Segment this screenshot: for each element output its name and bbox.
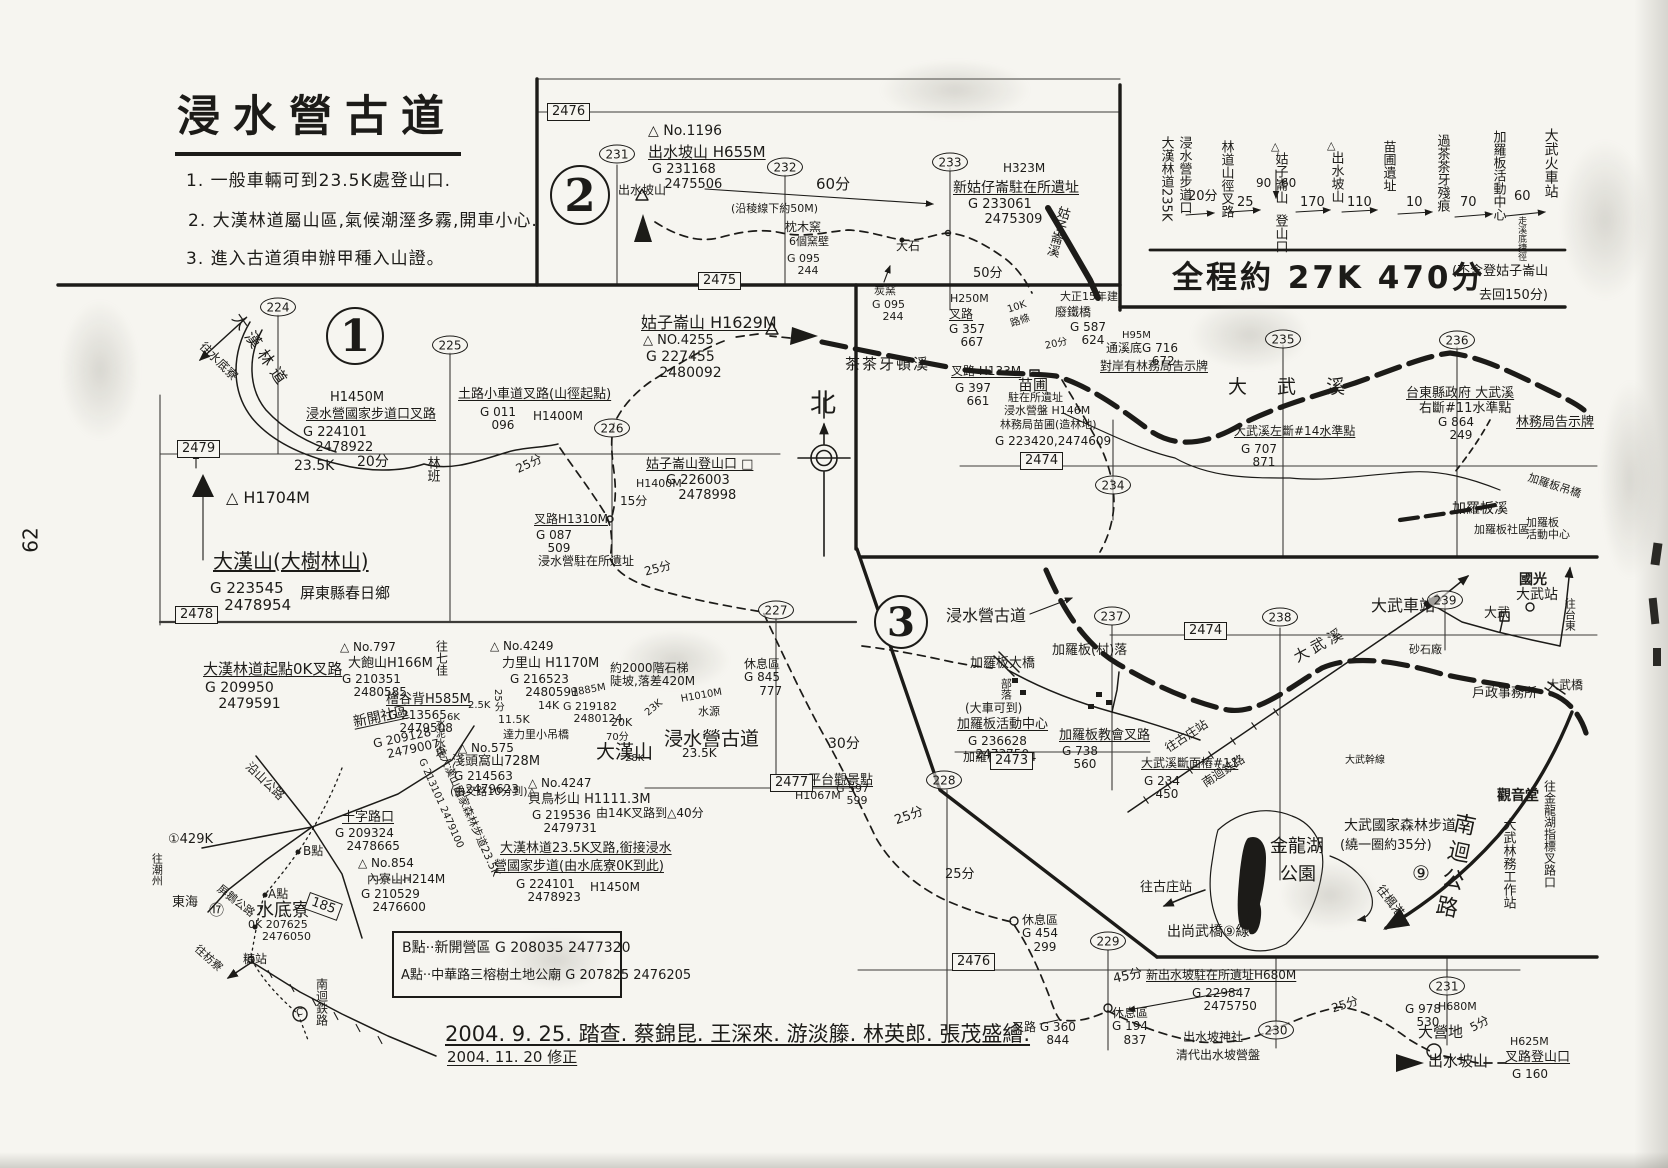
map-label: G 011 096 <box>480 406 516 433</box>
grid-coordinate-230: 230 <box>1258 1021 1294 1040</box>
map-label: G 160 <box>1512 1068 1548 1081</box>
grid-coordinate-227: 227 <box>758 601 794 620</box>
map-label: G 864 249 <box>1438 416 1474 443</box>
label-layer: 浸水營古道 1. 一般車輛可到23.5K處登山口. 2. 大漢林道屬山區,氣候潮… <box>0 0 1668 1168</box>
map-label: 砂石廠 <box>1409 644 1442 656</box>
map-label: 大漢林道235K <box>1158 136 1173 221</box>
map-label: 姑子崙溪 <box>1043 204 1071 258</box>
grid-label-2475: 2475 <box>698 272 741 290</box>
map-label: △ No.797 <box>340 641 396 654</box>
map-label: 60 <box>1281 177 1296 190</box>
map-label: 28K <box>625 753 644 764</box>
map-label: H680M <box>1438 1001 1477 1013</box>
map-label: 往金龍湖指標叉路口 <box>1542 780 1555 888</box>
map-label: 姑子崙山 H1629M <box>641 314 777 332</box>
map-label: G 219536 2479731 <box>532 809 597 836</box>
map-label: 林道山徑叉路 <box>1218 140 1233 218</box>
map-label: 營國家步道(由水底寮0K到此) <box>494 860 664 875</box>
map-label: G 095 244 <box>872 299 905 324</box>
grid-label-2479: 2479 <box>177 440 220 458</box>
map-label: 11.5K <box>498 714 530 726</box>
map-label: 大飽山H166M <box>348 657 433 672</box>
map-label: 大武幹線 <box>1345 755 1385 766</box>
map-label: 10 <box>1406 196 1423 211</box>
map-label: G 226003 2478998 <box>666 474 736 503</box>
map-label: 東海 <box>172 896 198 911</box>
map-label: ⑨ <box>1412 862 1430 884</box>
map-label: G 223420,2474609 <box>995 435 1111 448</box>
map-label: 對岸有林務局告示牌 <box>1100 360 1208 373</box>
map-label: B點··新開營區 G 208035 2477320 <box>402 941 631 957</box>
map-label: 大漢林道23.5K叉路,銜接浸水 <box>500 842 672 857</box>
map-label: 姑子崙山登山口 □ <box>646 458 753 473</box>
grid-coordinate-235: 235 <box>1265 330 1301 349</box>
map-label: 達力里小吊橋 <box>503 729 569 741</box>
map-label: 往七佳 <box>434 640 447 676</box>
map-label: 加羅板吊橋 <box>1526 472 1582 501</box>
map-label: 公園 <box>1280 865 1316 885</box>
map-label: H95M <box>1122 330 1151 341</box>
map-label: 糖站 <box>243 953 267 966</box>
map-label: 6K <box>447 712 460 723</box>
map-label: 戶政事務所 <box>1472 687 1537 702</box>
map-label: 路條 <box>1009 313 1031 330</box>
grid-coordinate-224: 224 <box>260 298 296 317</box>
map-label: 觀音堂 <box>1497 789 1539 805</box>
map-label: 加羅板(村)落 <box>1052 644 1127 659</box>
map-label: G 223545 2478954 <box>210 580 291 614</box>
map-label: H1400M <box>533 410 583 423</box>
map-label: G 229847 2475750 <box>1192 987 1257 1014</box>
map-label: 加羅板溪 <box>1452 502 1508 518</box>
map-label: △ No.4247 <box>528 777 592 790</box>
map-label: 叉路H1310M <box>534 513 608 526</box>
map-label: G 209324 2478665 <box>335 827 400 854</box>
map-label: 力里山 H1170M <box>502 657 599 672</box>
map-label: 大 武 溪 <box>1228 377 1357 398</box>
map-label: 加羅板活動中心 <box>957 718 1048 733</box>
map-label: G 587 624 <box>1070 321 1106 348</box>
map-label: 過茶茶牙殘痕 <box>1434 134 1449 212</box>
map-label: 新出水坡駐在所遺址H680M <box>1146 969 1296 982</box>
map-label: 加羅板活動中心 <box>1490 130 1505 221</box>
map-label: 大武橋 <box>1547 679 1583 692</box>
grid-coordinate-229: 229 <box>1090 932 1126 951</box>
map-label: 20分 <box>1188 190 1218 205</box>
grid-label-2476: 2476 <box>547 103 590 121</box>
map-label: 23.5K <box>682 747 717 760</box>
map-label: 叉路登山口 <box>1505 1051 1570 1066</box>
map-label: 走溪底捷徑 <box>1516 216 1526 261</box>
map-label: 大營地 <box>1418 1024 1463 1041</box>
map-label: H1450M <box>590 881 640 894</box>
map-label: G 224101 2478923 <box>516 878 581 905</box>
map-note-1: 1. 一般車輛可到23.5K處登山口. <box>186 166 451 191</box>
map-label: 加羅板社區 <box>1474 524 1529 536</box>
map-label: 由14K叉路到△40分 <box>596 807 704 820</box>
map-label: 出水坡山 <box>618 184 666 197</box>
map-label: 2.5K <box>468 700 490 711</box>
map-label: 5分 <box>1468 1014 1492 1035</box>
map-label: 水源 <box>698 706 720 718</box>
map-label: 枕木窯 <box>785 221 821 234</box>
map-label: 十字路口 <box>342 811 394 826</box>
map-label: (繞一圈約35分) <box>1340 839 1432 854</box>
map-label: 6個窯壁 <box>789 236 829 248</box>
map-note-3: 3. 進入古道須申辦甲種入山證。 <box>186 244 445 269</box>
map-label: 25分 <box>1330 995 1360 1016</box>
grid-coordinate-226: 226 <box>594 419 630 438</box>
map-label: 叉路 G 360 844 <box>1012 1021 1076 1048</box>
map-label: 土路小車道叉路(山徑起點) <box>458 388 611 403</box>
map-label: 叉路 H133M <box>951 365 1021 378</box>
map-label: 25分 <box>893 805 926 829</box>
map-label: 登山口 <box>1272 214 1287 253</box>
map-label: 45分 <box>1112 967 1144 987</box>
grid-coordinate-237: 237 <box>1094 607 1130 626</box>
map-label: G 597 599 <box>836 783 869 808</box>
map-label: 大武林務工作站 <box>1500 818 1515 909</box>
map-label: 北 <box>810 390 836 419</box>
map-label: 15分 <box>620 495 647 508</box>
map-label: 金龍湖 <box>1270 837 1324 857</box>
grid-label-2477: 2477 <box>770 774 813 792</box>
map-label: H250M <box>950 293 989 305</box>
grid-coordinate-231: 231 <box>599 145 635 164</box>
map-label: G 095 244 <box>787 253 820 278</box>
map-label: G 234 450 <box>1144 775 1180 802</box>
map-label: 往枋寮 <box>192 943 225 974</box>
map-label: G 707 871 <box>1241 443 1277 470</box>
map-label: 約2000階石梯 陡坡,落差420M <box>610 662 695 689</box>
grid-coordinate-239: 239 <box>1427 591 1463 610</box>
map-label: 休息區 G 845 777 <box>744 658 782 698</box>
map-label: 60 <box>1514 190 1531 205</box>
map-label: 沿山公路 <box>243 760 287 803</box>
map-label: G 210529 2476600 <box>361 888 426 915</box>
map-label: △ NO.4255 <box>643 334 714 349</box>
map-label: 內寮山H214M <box>367 873 445 886</box>
map-label: 茶茶牙頓溪 <box>845 356 930 373</box>
map-label: 炭窯 <box>874 285 896 297</box>
map-label: G 209128 2479007 <box>372 725 441 765</box>
map-label: 大武車站 <box>1371 597 1435 615</box>
map-label: 大武國家森林步道 <box>1344 819 1456 835</box>
map-label: 20分 <box>1044 336 1069 352</box>
grid-coordinate-234: 234 <box>1095 476 1131 495</box>
map-label: 大石 <box>896 240 920 253</box>
scan-edge-bottom <box>0 1152 1668 1168</box>
map-label: 駐在所遺址 <box>1008 392 1063 404</box>
page-number: 62 <box>19 527 43 552</box>
map-label: 大漢林道起點0K叉路 <box>203 661 342 678</box>
map-label: △ H1704M <box>226 489 310 507</box>
map-label: 加羅板 活動中心 <box>1526 517 1570 542</box>
map-label: ⑰ <box>209 902 224 919</box>
map-label: 90 <box>1256 177 1271 190</box>
map-label: H323M <box>1003 162 1045 175</box>
map-label: △ No.1196 <box>648 124 722 140</box>
map-label: H1450M <box>330 391 384 406</box>
map-label: 出水坡神社 <box>1183 1031 1243 1044</box>
map-label: G 397 661 <box>955 382 991 409</box>
grid-coordinate-233: 233 <box>932 153 968 172</box>
grid-label-2474: 2474 <box>1184 622 1227 640</box>
map-label: 25 <box>1237 196 1254 211</box>
grid-coordinate-228: 228 <box>926 771 962 790</box>
map-label: 23K <box>643 698 665 719</box>
map-label: 部落 <box>999 678 1011 700</box>
grid-label-2476: 2476 <box>952 953 995 971</box>
map-label: G 233061 2475309 <box>968 198 1042 227</box>
route-total-note-1: (不含登姑子崙山 <box>1452 260 1548 279</box>
credit-line-1: 2004. 9. 25. 踏查. 蔡錦昆. 王深來. 游淡籐. 林英郎. 張茂盛… <box>445 1018 1030 1048</box>
map-label: ①429K <box>168 833 213 848</box>
map-label: 大武站 <box>1516 588 1558 604</box>
credit-line-2: 2004. 11. 20 修正 <box>447 1046 577 1067</box>
map-label: 25分 <box>945 868 975 883</box>
map-label: 14K <box>538 700 559 712</box>
map-label: 新姑仔崙駐在所遺址 <box>953 181 1079 197</box>
map-label: H1010M <box>680 687 723 705</box>
map-label: 大武溪 <box>1291 624 1349 666</box>
map-label: 30分 <box>828 737 860 753</box>
map-label: 浸水營國家步道口叉路 <box>306 408 436 423</box>
map-label: 休息區 G 454 299 <box>1022 914 1058 954</box>
map-label: (沿稜線下約50M) <box>731 203 818 215</box>
map-note-2: 2. 大漢林道屬山區,氣候潮溼多霧,開車小心. <box>188 206 538 231</box>
map-label: 屏東縣春日鄉 <box>300 585 390 602</box>
map-title: 浸水營古道 <box>175 82 461 156</box>
map-label: 加羅板大橋 <box>970 657 1035 672</box>
route-total-note-2: 去回150分) <box>1479 284 1548 303</box>
map-label: 叉路 <box>949 308 973 321</box>
map-label: 出水坡山 <box>1328 151 1343 203</box>
map-label: 60分 <box>816 176 850 193</box>
map-label: 往古庄站 <box>1140 881 1192 896</box>
map-label: 大武溪左斷#14水準點 <box>1234 425 1355 438</box>
map-label: H625M <box>1510 1036 1549 1048</box>
map-label: 70 <box>1460 196 1477 211</box>
map-label: 南迴鉄路 <box>314 978 327 1026</box>
map-label: G 357 667 <box>949 323 985 350</box>
map-label: 20K <box>611 717 632 729</box>
map-label: 林務局苗圃(造林地) <box>1000 419 1097 431</box>
map-label: 出水坡山 H655M <box>648 144 766 161</box>
map-label: 50分 <box>973 267 1003 282</box>
map-label: 大武 <box>1484 607 1510 622</box>
section-marker-1: 1 <box>326 307 384 365</box>
map-label: 往潮州 <box>150 853 162 886</box>
map-label: 110 <box>1347 196 1372 211</box>
grid-label-2474: 2474 <box>1020 452 1063 470</box>
map-label: A點··中華路三榕樹土地公廟 G 207825 2476205 <box>401 969 691 984</box>
map-label: C <box>296 1007 303 1018</box>
map-label: G 224101 2478922 <box>303 426 373 455</box>
map-label: △ No.854 <box>358 857 414 870</box>
grid-label-2478: 2478 <box>175 606 218 624</box>
map-label: G 209950 2479591 <box>205 681 281 712</box>
map-label: 台東縣政府 大武溪 <box>1406 387 1514 402</box>
map-label: 25分 <box>514 452 544 476</box>
section-marker-3: 3 <box>874 595 928 649</box>
map-label: 往台東 <box>1563 598 1575 631</box>
map-label: 休息區 G 194 837 <box>1112 1007 1148 1047</box>
map-label: G 227455 2480092 <box>646 350 722 381</box>
map-label: 大漢林道 <box>228 310 293 392</box>
route-total: 全程約 27K 470分 <box>1172 252 1485 297</box>
map-label: 出尚武橋⑨線 <box>1167 925 1250 941</box>
map-label: 170 <box>1300 196 1325 211</box>
map-label: 出水坡山 <box>1428 1053 1488 1070</box>
map-label: 清代出水坡營盤 <box>1176 1049 1260 1062</box>
grid-coordinate-225: 225 <box>432 336 468 355</box>
map-label: 20分 <box>357 455 389 471</box>
map-label: G 216523 2480591 <box>510 673 579 700</box>
map-label: 林班 <box>424 456 439 482</box>
map-label: 23.5K <box>294 459 334 475</box>
map-label: 浸水營駐在所遺址 <box>538 555 634 568</box>
map-canvas: 浸水營古道 1. 一般車輛可到23.5K處登山口. 2. 大漢林道屬山區,氣候潮… <box>0 0 1668 1168</box>
grid-coordinate-238: 238 <box>1262 608 1298 627</box>
map-label: 往水底寮 <box>196 340 239 383</box>
map-label: 0K 207625 2476050 <box>248 919 311 944</box>
map-label: 25分 <box>492 689 503 712</box>
map-label: 往古庄站 <box>1163 718 1211 755</box>
map-label: 浸水營盤 H146M <box>1004 405 1090 417</box>
map-label: △ No.4249 <box>490 640 554 653</box>
map-label: (大車可到) <box>965 702 1022 715</box>
map-label: 廢鐵橋 <box>1055 306 1091 319</box>
map-label: B點 <box>303 845 323 858</box>
grid-coordinate-232: 232 <box>767 158 803 177</box>
map-label: 林務局告示牌 <box>1516 416 1594 431</box>
map-label: G 738 560 <box>1062 745 1098 772</box>
section-marker-2: 2 <box>550 165 610 225</box>
map-label: 大武火車站 <box>1542 128 1558 198</box>
map-label: 淺頭窩山728M <box>452 755 540 770</box>
grid-coordinate-231: 231 <box>1429 977 1465 996</box>
map-label: 加羅板教會叉路 <box>1059 729 1150 744</box>
map-label: 大正15年建 <box>1060 291 1118 303</box>
map-label: 25分 <box>643 559 673 579</box>
map-label: 苗圃遺址 <box>1380 140 1395 192</box>
map-label: 浸水營古道 <box>946 607 1026 625</box>
map-label: G 087 509 <box>536 529 572 556</box>
scan-edge-right <box>1634 0 1668 1168</box>
grid-coordinate-236: 236 <box>1439 331 1475 350</box>
grid-label-2473: 2473 <box>990 752 1033 770</box>
map-label: 大漢山(大樹林山) <box>213 550 369 572</box>
